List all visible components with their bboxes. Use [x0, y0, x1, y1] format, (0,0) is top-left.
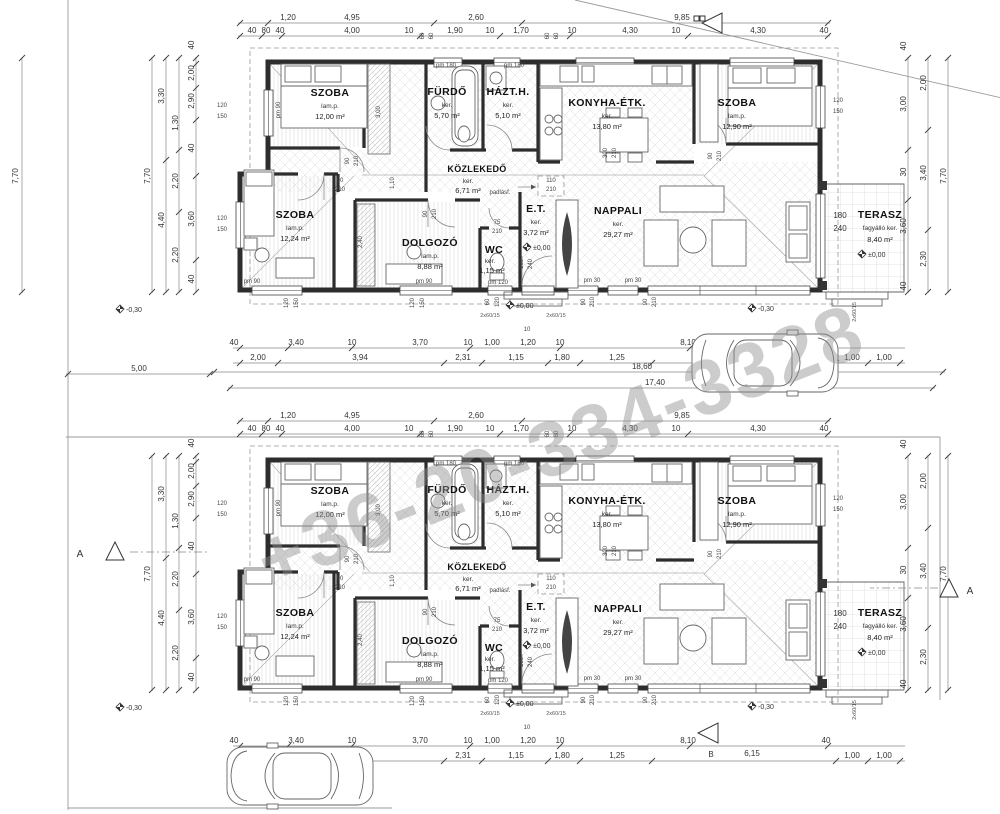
dim-label: 6,15	[744, 749, 760, 758]
section-label: A	[77, 549, 84, 560]
floor-plan-drawing: 1,20 4,95 2,60 9,85 40 80 40 4,00 10 60 …	[0, 0, 1000, 814]
blueprint-canvas: 1,20 4,95 2,60 9,85 40 80 40 4,00 10 60 …	[0, 0, 1000, 814]
section-label: B	[708, 750, 713, 759]
dim-label: 5,00	[131, 364, 147, 373]
dim-label: 7,70	[11, 168, 20, 184]
car-bottom	[227, 743, 373, 809]
section-label: A	[967, 586, 974, 597]
